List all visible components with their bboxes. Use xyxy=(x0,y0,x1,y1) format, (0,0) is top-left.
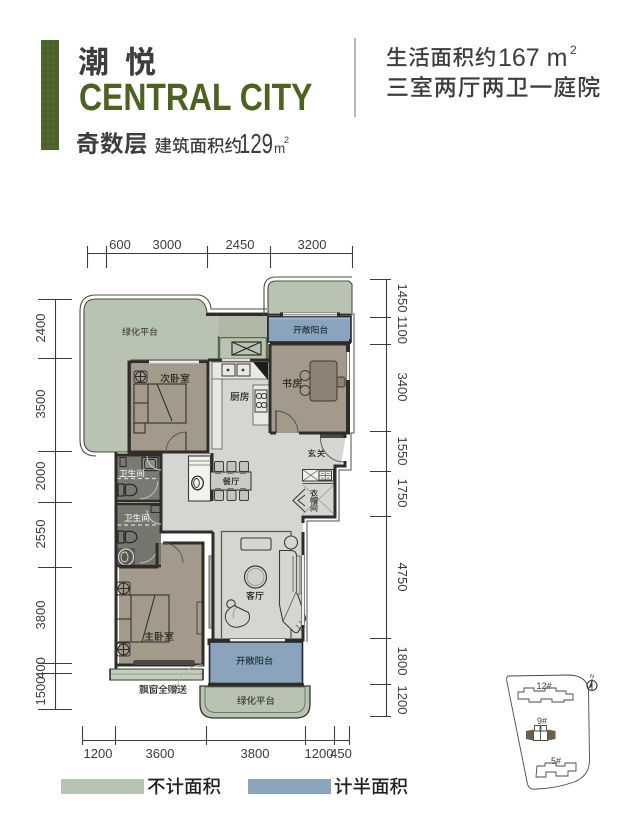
svg-text:2000: 2000 xyxy=(33,462,48,491)
svg-text:N: N xyxy=(590,674,594,680)
svg-text:2400: 2400 xyxy=(33,314,48,343)
svg-text:1200: 1200 xyxy=(395,686,410,715)
svg-text:1200: 1200 xyxy=(305,746,334,761)
svg-text:2: 2 xyxy=(284,135,289,145)
svg-text:1750: 1750 xyxy=(395,479,410,508)
svg-text:167 m: 167 m xyxy=(498,44,567,72)
svg-text:CENTRAL CITY: CENTRAL CITY xyxy=(79,76,312,118)
svg-text:12#: 12# xyxy=(536,681,551,691)
svg-text:1200: 1200 xyxy=(84,746,113,761)
svg-text:9#: 9# xyxy=(537,716,547,726)
svg-text:1100: 1100 xyxy=(395,316,410,344)
svg-text:3500: 3500 xyxy=(33,390,48,419)
svg-text:3600: 3600 xyxy=(146,746,175,761)
svg-text:3000: 3000 xyxy=(153,237,182,252)
svg-text:3400: 3400 xyxy=(395,373,410,402)
svg-text:2550: 2550 xyxy=(33,520,48,549)
svg-text:1550: 1550 xyxy=(395,437,410,466)
svg-text:1800: 1800 xyxy=(395,647,410,676)
svg-text:3200: 3200 xyxy=(298,237,327,252)
svg-text:600: 600 xyxy=(109,237,131,252)
svg-text:450: 450 xyxy=(330,746,352,761)
svg-text:129: 129 xyxy=(239,128,273,159)
svg-text:3800: 3800 xyxy=(33,601,48,630)
svg-text:2450: 2450 xyxy=(226,237,255,252)
svg-text:1500: 1500 xyxy=(33,677,48,706)
svg-text:3800: 3800 xyxy=(241,746,270,761)
svg-text:400: 400 xyxy=(33,657,48,679)
svg-text:4750: 4750 xyxy=(395,563,410,592)
svg-text:1450: 1450 xyxy=(395,284,410,313)
svg-text:2: 2 xyxy=(570,43,577,57)
